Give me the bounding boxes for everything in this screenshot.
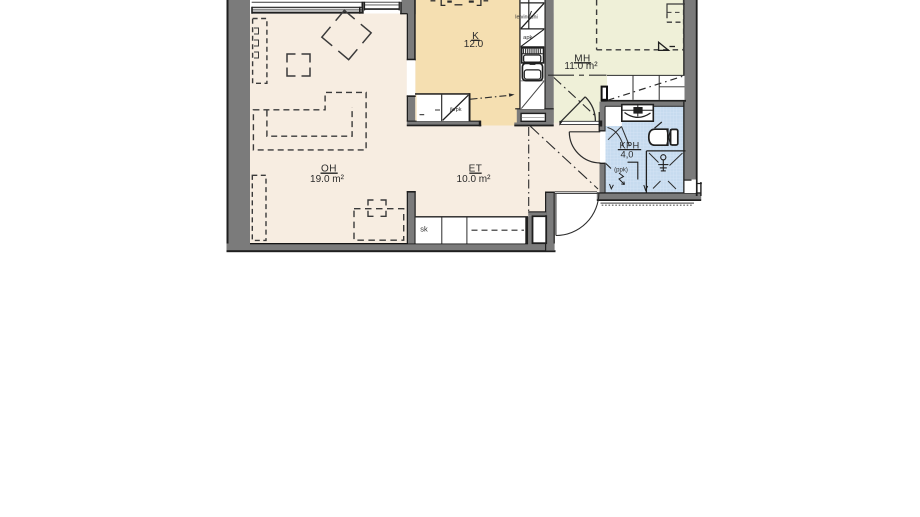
- svg-text:12.0: 12.0: [464, 39, 484, 50]
- svg-text:19.0 m²: 19.0 m²: [310, 174, 345, 185]
- svg-text:10.0 m²: 10.0 m²: [457, 174, 492, 185]
- svg-text:11.0 m²: 11.0 m²: [564, 61, 598, 72]
- svg-text:apk: apk: [523, 35, 532, 41]
- svg-text:4,0: 4,0: [621, 149, 634, 159]
- svg-text:leivinuuni: leivinuuni: [515, 14, 537, 20]
- svg-text:(ppk): (ppk): [614, 167, 628, 173]
- svg-text:sk: sk: [420, 225, 428, 234]
- svg-text:jk/pk: jk/pk: [449, 107, 462, 113]
